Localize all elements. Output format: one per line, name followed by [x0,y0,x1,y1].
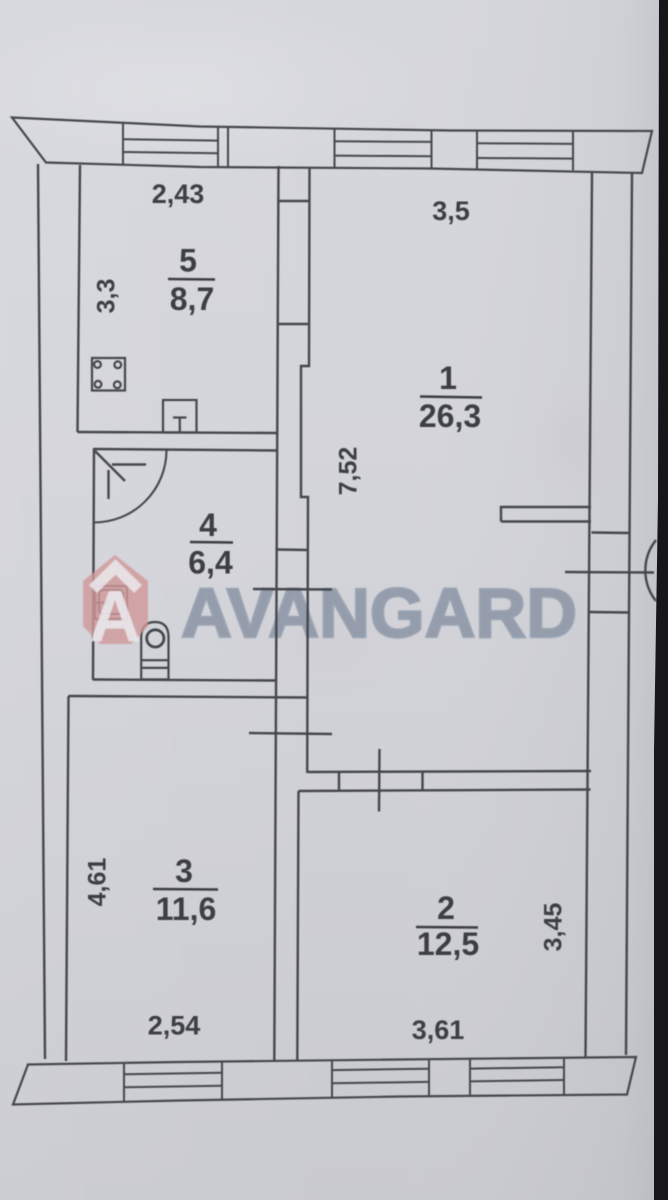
svg-text:11,6: 11,6 [156,891,217,927]
svg-text:6,4: 6,4 [188,545,233,581]
svg-text:2: 2 [437,890,455,926]
svg-text:12,5: 12,5 [417,926,479,962]
svg-text:3,61: 3,61 [412,1015,465,1045]
svg-text:3,3: 3,3 [93,279,121,314]
svg-text:5: 5 [179,243,197,279]
svg-text:2,43: 2,43 [152,179,205,209]
svg-text:4,61: 4,61 [84,858,112,907]
svg-text:3,45: 3,45 [540,903,568,952]
svg-text:3,5: 3,5 [432,196,470,226]
svg-text:8,7: 8,7 [170,281,214,317]
svg-text:3: 3 [175,853,193,889]
svg-text:1: 1 [439,360,457,396]
svg-text:7,52: 7,52 [335,447,363,496]
svg-text:AVANGARD: AVANGARD [181,574,577,652]
svg-text:A: A [89,577,141,657]
svg-text:26,3: 26,3 [419,398,481,434]
svg-text:2,54: 2,54 [148,1011,201,1041]
svg-text:4: 4 [199,507,217,543]
